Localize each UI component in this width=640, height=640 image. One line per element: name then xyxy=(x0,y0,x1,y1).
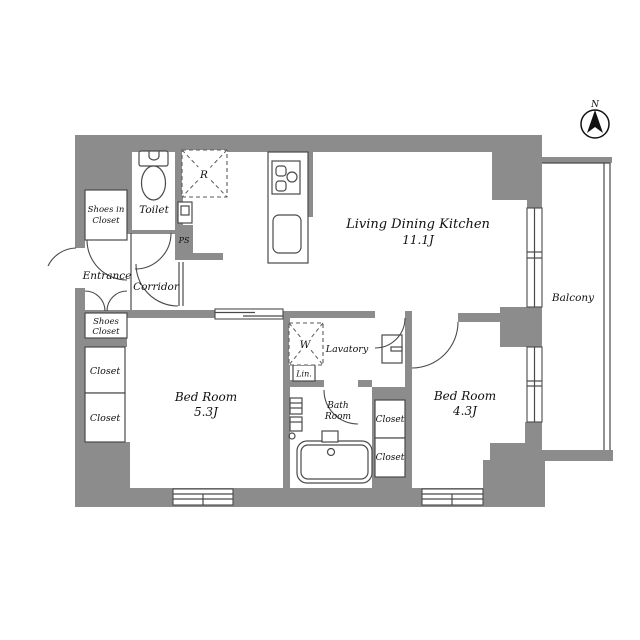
label-linen: Lin. xyxy=(295,370,312,379)
label-entrance: Entrance xyxy=(82,270,132,282)
label-toilet: Toilet xyxy=(139,204,169,216)
shower-unit-icon xyxy=(290,417,302,431)
toilet-bowl xyxy=(142,166,166,200)
toilet-door-arc xyxy=(135,233,171,269)
label-shoes-closet-2: Closet xyxy=(92,327,120,337)
label-shoes-in-closet-2: Closet xyxy=(92,216,120,226)
label-closet-bed43-upper: Closet xyxy=(376,415,405,425)
wall-band-b xyxy=(283,311,375,318)
wall-lavatory-right xyxy=(405,313,412,387)
wall-left-upper xyxy=(75,190,85,248)
wall-band-d xyxy=(458,313,508,322)
label-bath-1: Bath xyxy=(326,401,348,411)
label-shoes-in-closet-1: Shoes in xyxy=(88,205,125,215)
toilet-tank xyxy=(139,151,168,166)
vanity-tap xyxy=(391,347,402,351)
label-bed43: Bed Room xyxy=(433,389,496,403)
floor-plan: N Living Dining Kitchen 11.1J Bed Room 5… xyxy=(0,0,640,640)
wall-closet-bed43-right xyxy=(405,400,412,487)
label-corridor: Corridor xyxy=(133,281,180,293)
label-ldk: Living Dining Kitchen xyxy=(345,217,490,232)
label-closet-bed53-lower: Closet xyxy=(90,413,121,424)
window-bed43-south xyxy=(422,489,483,505)
label-lavatory: Lavatory xyxy=(325,344,369,355)
wall-ps-bar xyxy=(175,253,223,260)
wall-top-left-block xyxy=(75,135,132,190)
label-shoes-closet-1: Shoes xyxy=(93,317,119,327)
shower-unit-icon xyxy=(290,398,302,414)
sliding-door-frame xyxy=(215,309,283,319)
wall-closet-divider-block xyxy=(85,338,127,347)
label-bed53: Bed Room xyxy=(174,390,237,404)
kitchen-counter xyxy=(268,152,308,263)
label-closet-bed53-upper: Closet xyxy=(90,366,121,377)
label-pipe-space: PS xyxy=(178,236,190,245)
label-bed53-area: 5.3J xyxy=(194,405,219,419)
balcony-top-bar xyxy=(542,157,612,163)
compass-north-label: N xyxy=(590,100,600,110)
wall-top xyxy=(75,135,542,152)
bed43-door-arc xyxy=(412,322,458,368)
shoes-closet-bifold-arc xyxy=(107,291,127,311)
bathtub-icon xyxy=(297,441,372,483)
entrance-door-arc xyxy=(48,248,76,266)
balcony-bottom-bar xyxy=(542,450,613,461)
label-ldk-area: 11.1J xyxy=(402,233,435,247)
label-refrigerator: R xyxy=(199,169,208,181)
north-compass: N xyxy=(581,100,609,138)
bath-step xyxy=(322,431,338,442)
water-heater-icon xyxy=(178,202,192,223)
label-balcony: Balcony xyxy=(551,292,595,304)
wall-bed53-lavatory xyxy=(283,318,290,488)
heater-outline xyxy=(178,202,192,223)
wall-toilet-left xyxy=(127,150,132,233)
sliding-door-bed53 xyxy=(215,309,283,319)
window-bed53-south xyxy=(173,489,233,505)
wall-top-right-a xyxy=(492,135,542,200)
label-bed43-area: 4.3J xyxy=(452,404,478,418)
window-ldk-balcony xyxy=(527,208,542,307)
shoes-in-closet-box xyxy=(85,190,127,240)
wall-right-low-c xyxy=(483,460,545,507)
balcony-edge xyxy=(542,163,610,450)
wall-below-closets xyxy=(372,477,412,488)
wall-toilet-bottom xyxy=(127,230,183,234)
counter-outline xyxy=(268,152,308,263)
toilet-fixture-icon xyxy=(139,151,168,200)
label-washer: W xyxy=(300,339,312,351)
label-bath-2: Room xyxy=(324,412,351,422)
label-closet-bed43-lower: Closet xyxy=(376,453,405,463)
shoes-closet-bifold-arc xyxy=(85,291,105,311)
wall-above-closets xyxy=(372,387,412,400)
window-bed43-balcony xyxy=(527,347,542,422)
wall-bottom-left-block xyxy=(75,442,130,490)
wall-lavatory-bottom-right xyxy=(358,380,372,387)
floor-plan-drawing: N Living Dining Kitchen 11.1J Bed Room 5… xyxy=(0,0,640,640)
